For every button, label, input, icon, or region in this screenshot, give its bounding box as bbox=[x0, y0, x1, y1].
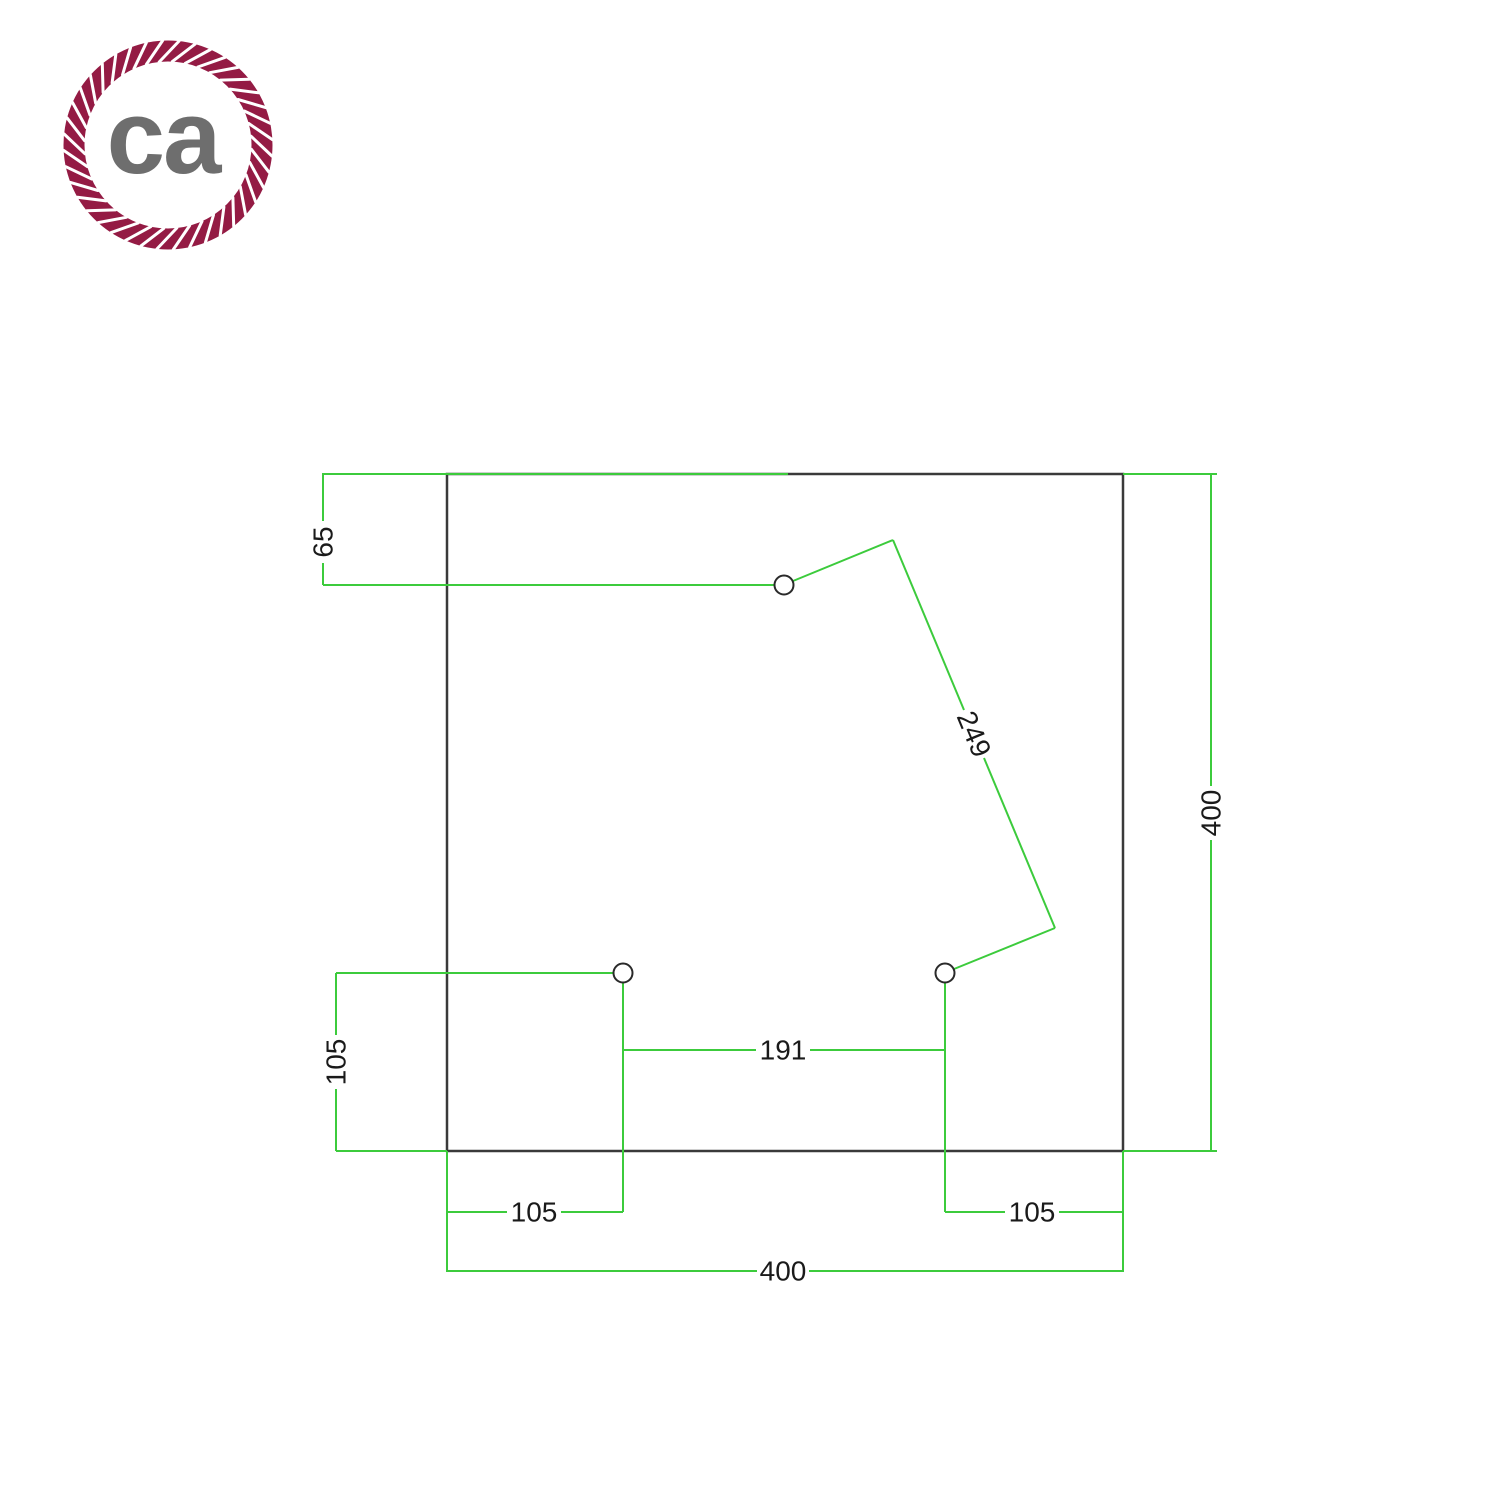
dim-left-hole-inset: 105 bbox=[447, 1151, 623, 1272]
dim-top-hole-offset: 65 bbox=[308, 474, 789, 585]
extension-line bbox=[793, 540, 893, 581]
dim-bottom-holes-spacing: 191 bbox=[623, 983, 945, 1212]
dim-label-249: 249 bbox=[951, 706, 998, 761]
dim-label-105-left: 105 bbox=[321, 1039, 352, 1086]
dim-label-400-bottom: 400 bbox=[760, 1256, 807, 1287]
dim-label-400-right: 400 bbox=[1196, 790, 1227, 837]
dimension-drawing: 65 400 105 191 bbox=[0, 0, 1500, 1500]
dimension-line bbox=[984, 758, 1055, 928]
dim-label-105-bottom-left: 105 bbox=[511, 1197, 558, 1228]
dim-plate-width: 400 bbox=[447, 1256, 1123, 1287]
hole-bottom-left bbox=[614, 964, 633, 983]
dim-left-hole-height: 105 bbox=[321, 973, 614, 1151]
dim-label-65: 65 bbox=[308, 526, 339, 557]
hole-bottom-right bbox=[936, 964, 955, 983]
page: ca 65 400 105 bbox=[0, 0, 1500, 1500]
dim-diagonal-holes-spacing: 249 bbox=[793, 540, 1055, 969]
dimension-line bbox=[893, 540, 964, 710]
dim-right-hole-inset: 105 bbox=[945, 1151, 1123, 1272]
hole-top bbox=[775, 576, 794, 595]
dim-label-105-bottom-right: 105 bbox=[1009, 1197, 1056, 1228]
dim-label-191: 191 bbox=[760, 1035, 807, 1066]
extension-line bbox=[954, 928, 1055, 969]
dim-plate-height: 400 bbox=[1123, 474, 1227, 1151]
